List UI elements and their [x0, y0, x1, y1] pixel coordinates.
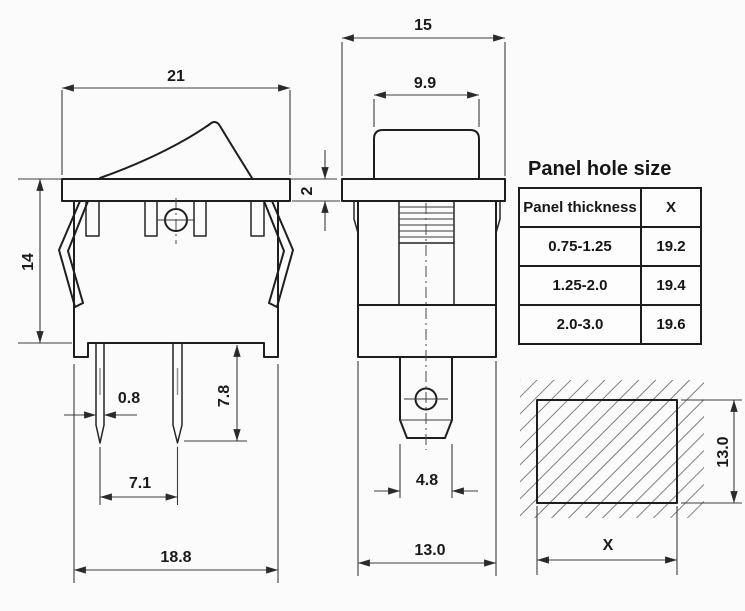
rocker-actuator-profile	[100, 122, 252, 178]
dim-label-cutout-13-0: 13.0	[715, 436, 732, 467]
cell-thickness: 1.25-2.0	[519, 266, 641, 305]
dim-front-top-width: 15	[342, 17, 505, 176]
dim-pin-width: 0.8	[64, 390, 140, 415]
peg	[145, 201, 157, 236]
rocker-switch-technical-drawing: 21 14 2 0.8	[0, 0, 745, 611]
snap-clips	[59, 201, 293, 307]
dim-label-18-8: 18.8	[160, 549, 191, 566]
dim-side-height: 14	[18, 179, 72, 343]
cell-x: 19.4	[641, 266, 701, 305]
dim-flange-thickness: 2	[292, 150, 340, 231]
panel-hole-size-table: Panel thickness X 0.75-1.25 19.2 1.25-2.…	[518, 187, 702, 345]
dim-label-cutout-x: X	[603, 537, 614, 554]
table-row: 1.25-2.0 19.4	[519, 266, 701, 305]
dim-label-21: 21	[167, 68, 185, 85]
table-row: 2.0-3.0 19.6	[519, 305, 701, 344]
dim-label-15: 15	[414, 17, 432, 34]
cell-thickness: 2.0-3.0	[519, 305, 641, 344]
front-body	[358, 201, 496, 305]
cell-x: 19.2	[641, 227, 701, 266]
dim-label-0-8: 0.8	[118, 390, 140, 407]
col-header-panel-thickness: Panel thickness	[519, 188, 641, 227]
dim-label-7-8: 7.8	[216, 385, 233, 407]
front-view: 15 9.9 4.8 13.0	[342, 17, 505, 576]
dim-pin-length: 7.8	[184, 345, 247, 441]
panel-table-title: Panel hole size	[528, 158, 706, 181]
dim-label-2: 2	[299, 186, 316, 195]
front-flange	[342, 179, 505, 201]
table-header-row: Panel thickness X	[519, 188, 701, 227]
dim-label-4-8: 4.8	[416, 472, 438, 489]
dim-front-bottom-width: 13.0	[358, 361, 496, 576]
front-base-block	[358, 305, 496, 357]
dim-terminal-width: 4.8	[374, 444, 478, 498]
panel-cutout-view: 13.0 X	[520, 380, 742, 575]
cell-thickness: 0.75-1.25	[519, 227, 641, 266]
dim-side-top-width: 21	[62, 68, 290, 175]
peg	[251, 201, 264, 236]
panel-hole-size-panel: Panel hole size Panel thickness X 0.75-1…	[518, 158, 706, 345]
dim-pin-spacing: 7.1	[100, 447, 178, 505]
cell-x: 19.6	[641, 305, 701, 344]
table-row: 0.75-1.25 19.2	[519, 227, 701, 266]
dim-label-14: 14	[20, 253, 37, 271]
rocker-button	[374, 130, 479, 179]
col-header-x: X	[641, 188, 701, 227]
dim-rocker-width: 9.9	[374, 75, 479, 127]
side-view: 21 14 2 0.8	[18, 68, 340, 583]
peg	[86, 201, 99, 236]
dim-label-7-1: 7.1	[129, 475, 151, 492]
dim-label-9-9: 9.9	[414, 75, 436, 92]
mounting-flange	[62, 179, 290, 201]
peg	[194, 201, 206, 236]
dim-label-13-0: 13.0	[414, 542, 445, 559]
